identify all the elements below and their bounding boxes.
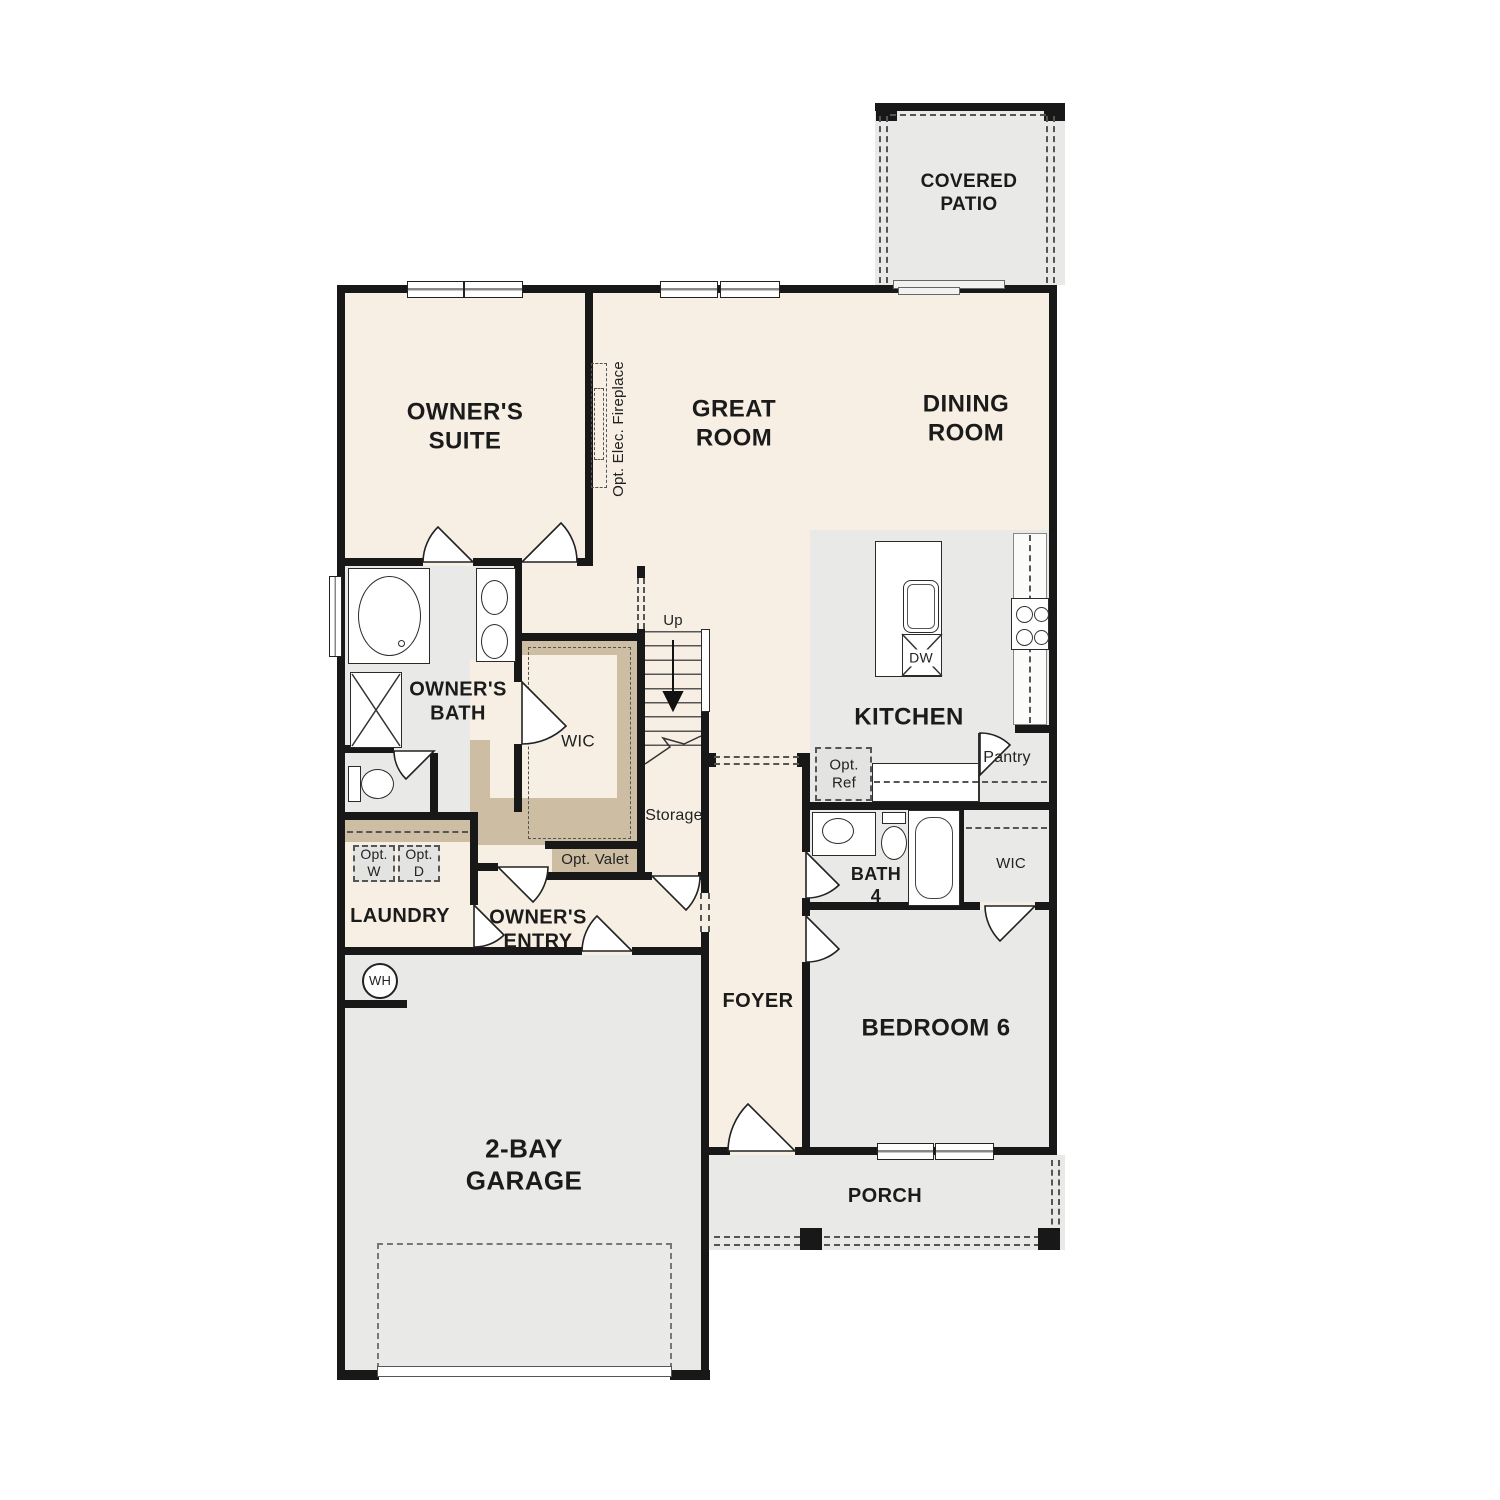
note-dishwasher: DW <box>907 649 935 666</box>
wall <box>577 558 593 566</box>
sink <box>822 818 854 844</box>
wall <box>337 1370 379 1380</box>
patio-dash <box>890 114 1046 116</box>
porch-dash <box>714 1236 1060 1238</box>
patio-dash <box>1053 116 1055 283</box>
floor-plan: COVERED PATIO OWNER'S SUITE GREAT ROOM D… <box>0 0 1500 1500</box>
porch-dash <box>714 1244 1060 1246</box>
window <box>329 576 342 657</box>
opt-fireplace-inner <box>594 388 604 460</box>
room-label-bath4: BATH 4 <box>851 864 901 908</box>
room-label-dining-room: DINING ROOM <box>923 390 1009 449</box>
wic6-shelf-dash <box>966 827 1047 829</box>
sink <box>481 580 508 615</box>
wall <box>802 753 810 852</box>
window <box>407 281 464 298</box>
sliding-door-panel <box>898 287 960 295</box>
window <box>464 281 523 298</box>
note-opt-elec-fireplace: Opt. Elec. Fireplace <box>610 361 628 497</box>
porch-post <box>1038 1228 1060 1250</box>
pantry-wall <box>978 733 980 802</box>
shower <box>350 672 402 748</box>
patio-dash <box>886 116 888 283</box>
wall <box>1015 725 1049 733</box>
stair-rail <box>701 629 710 712</box>
note-stairs-up: Up <box>663 612 683 630</box>
wall <box>810 802 1049 810</box>
staircase <box>645 631 701 748</box>
cased-opening <box>714 763 799 765</box>
note-opt-valet: Opt. Valet <box>561 851 629 869</box>
window <box>877 1143 934 1160</box>
wall <box>470 820 478 905</box>
room-label-owners-entry: OWNER'S ENTRY <box>489 906 587 955</box>
note-opt-ref: Opt. Ref <box>829 757 858 794</box>
garage-door-recess <box>377 1243 672 1369</box>
wall <box>637 566 645 578</box>
room-label-storage: Storage <box>645 806 702 826</box>
window <box>935 1143 994 1160</box>
note-pantry: Pantry <box>983 748 1030 768</box>
counter-dash <box>874 781 1047 783</box>
wall <box>337 285 345 1380</box>
wall <box>545 841 645 849</box>
wall <box>545 872 652 880</box>
room-label-great-room: GREAT ROOM <box>692 395 776 454</box>
burner <box>1016 629 1033 646</box>
island-sink-basin <box>907 584 935 629</box>
sink <box>481 624 508 659</box>
wall <box>478 863 498 871</box>
room-label-bedroom6: BEDROOM 6 <box>862 1013 1011 1042</box>
room-label-porch: PORCH <box>848 1184 922 1208</box>
tub-basin <box>915 817 953 899</box>
room-label-kitchen: KITCHEN <box>854 702 963 731</box>
toilet-tank <box>882 812 906 824</box>
cased-opening <box>714 756 799 758</box>
wall <box>802 898 810 916</box>
wall <box>802 962 810 1147</box>
cased-opening <box>700 893 710 932</box>
wall <box>514 633 645 641</box>
wall <box>473 558 522 566</box>
wall <box>514 744 522 812</box>
burner <box>1034 630 1049 645</box>
wall <box>345 1000 407 1008</box>
bathtub-drain <box>398 640 405 647</box>
wall <box>698 872 709 880</box>
garage-door <box>377 1366 672 1377</box>
wall <box>1049 285 1057 1155</box>
room-label-covered-patio: COVERED PATIO <box>921 170 1018 216</box>
toilet-bowl <box>881 826 907 860</box>
burner <box>1016 606 1033 623</box>
burner <box>1034 607 1049 622</box>
wall <box>1035 902 1049 910</box>
cased-opening <box>637 578 639 629</box>
wall <box>337 558 423 566</box>
cased-opening <box>643 578 645 629</box>
note-water-heater: WH <box>369 973 391 989</box>
toilet-tank <box>348 766 361 802</box>
wall <box>708 1147 730 1155</box>
wall <box>875 103 1065 111</box>
window <box>660 281 718 298</box>
note-opt-dryer: Opt. D <box>405 846 432 880</box>
patio-dash <box>879 116 881 283</box>
toilet-bowl <box>361 769 394 799</box>
room-label-laundry: LAUNDRY <box>350 904 450 928</box>
room-label-garage: 2-BAY GARAGE <box>466 1133 583 1196</box>
window <box>720 281 780 298</box>
porch-post <box>800 1228 822 1250</box>
wall <box>632 947 709 955</box>
patio-dash <box>1046 116 1048 283</box>
room-label-wic-bedroom6: WIC <box>996 855 1026 873</box>
room-label-wic-owners: WIC <box>561 732 595 753</box>
wall <box>337 812 478 820</box>
bathtub-basin <box>358 576 421 656</box>
room-label-owners-suite: OWNER'S SUITE <box>407 398 524 457</box>
room-label-owners-bath: OWNER'S BATH <box>409 678 507 727</box>
note-opt-washer: Opt. W <box>360 846 387 880</box>
laundry-counter-dash <box>347 831 468 833</box>
wall <box>430 753 438 812</box>
room-label-foyer: FOYER <box>723 989 794 1013</box>
